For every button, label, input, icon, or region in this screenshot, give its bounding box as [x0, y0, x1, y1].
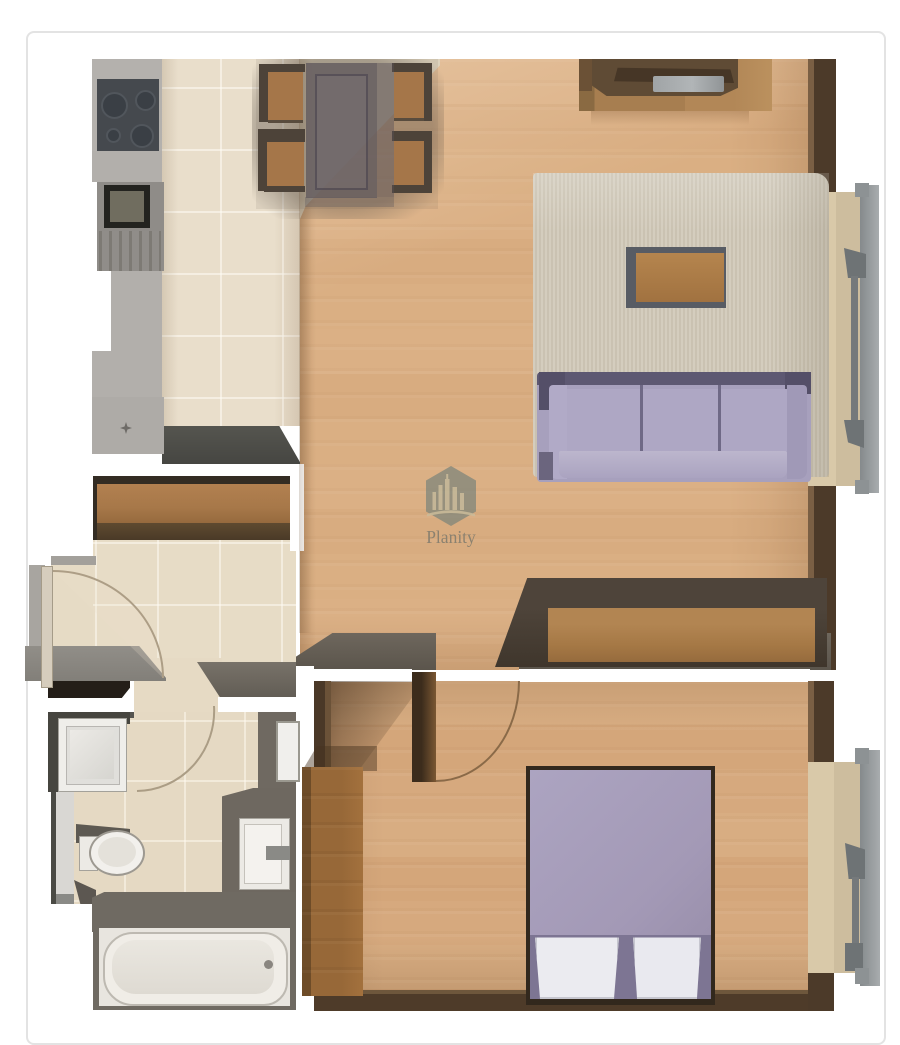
svg-text:Planity: Planity — [426, 527, 476, 547]
